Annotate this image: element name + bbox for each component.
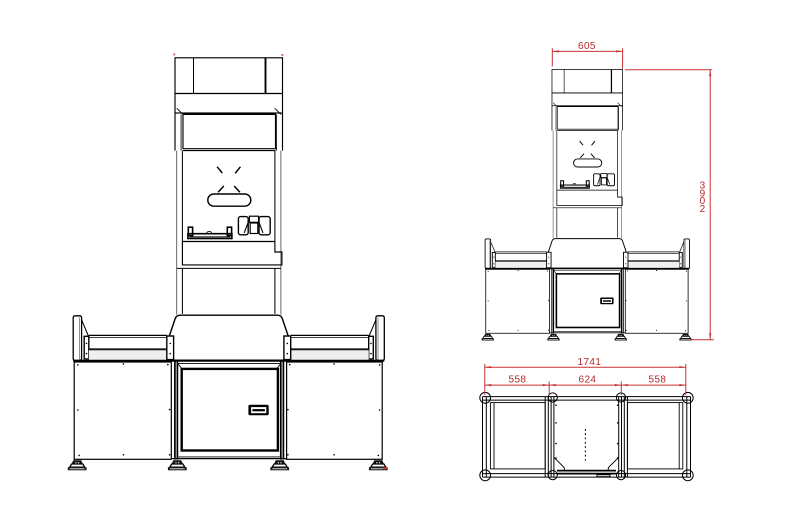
svg-text:3: 3 (700, 181, 706, 192)
svg-text:605: 605 (578, 41, 596, 52)
svg-text:1741: 1741 (578, 357, 602, 368)
svg-text:624: 624 (579, 375, 597, 386)
svg-text:558: 558 (649, 375, 667, 386)
svg-text:558: 558 (509, 375, 527, 386)
